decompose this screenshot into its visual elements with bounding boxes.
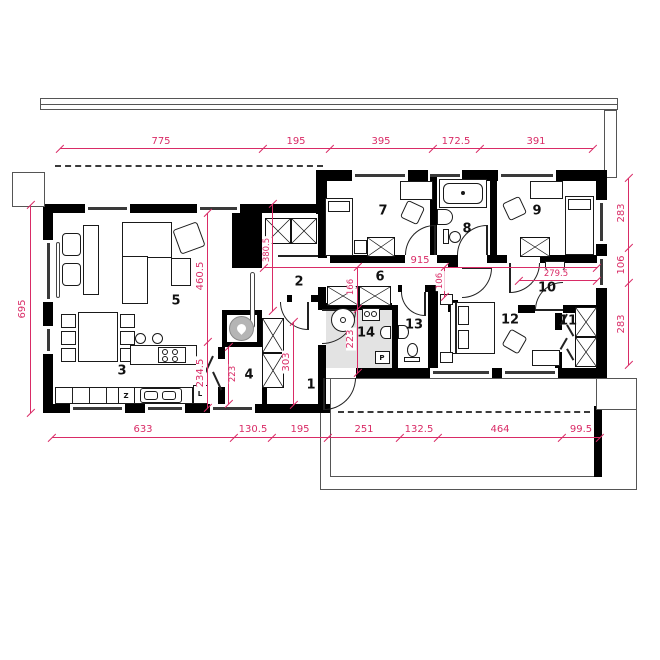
door-arc-room13 [401,292,425,316]
tv-wall-cabinet [232,213,262,268]
wall [218,347,225,359]
dim-line-380_5 [272,204,273,311]
dim-166: 166 [347,277,356,297]
wall [408,170,428,181]
wardrobe [262,318,284,353]
room-label-7: 7 [378,204,387,219]
wall [596,181,607,200]
desk [400,181,433,200]
dim-bottom-251: 251 [352,425,375,435]
room-label-5: 5 [171,294,180,309]
wall [240,204,326,213]
wall [43,354,53,413]
window-sash [213,407,252,410]
burner [162,349,168,355]
chair [62,263,81,286]
wardrobe [575,307,597,337]
washbasin [437,209,453,225]
wall [492,368,502,378]
wall [428,285,438,368]
armchair [172,221,205,254]
nightstand [440,352,453,363]
dim-303: 303 [282,350,292,373]
toilet-bowl [449,231,461,243]
room-label-8: 8 [462,222,471,237]
dim-line-279_5 [519,280,597,281]
pillow [568,199,591,210]
dim-bottom-633: 633 [131,425,154,435]
room-label-11: 11 [559,314,577,329]
wall [326,170,352,181]
dim-line-460_5 [207,213,208,408]
wall [518,305,535,313]
chair [120,331,135,345]
dim-bottom-195: 195 [288,425,311,435]
window-sash [505,371,555,374]
window-sash [47,329,50,351]
washer-drum [364,311,370,317]
dim-bottom-130_5: 130.5 [237,425,270,435]
dim-223-bath: 223 [346,327,356,350]
window-sash [200,207,237,210]
wall [311,295,318,302]
fridge-label: L [198,390,202,398]
dim-915: 915 [408,256,431,266]
desk [83,225,99,295]
chair [62,233,81,256]
headboard [455,303,457,353]
dresser [367,237,395,257]
wall [287,295,292,302]
room-label-9: 9 [532,204,541,219]
wardrobe [575,337,597,367]
room-label-10: 10 [538,281,556,296]
folding-door-room11 [566,349,574,361]
wall [125,404,145,413]
dim-279_5: 279.5 [542,270,570,279]
chair [502,329,528,355]
chair [502,196,527,221]
toilet-bowl [407,343,418,357]
washer-drum [371,311,377,317]
window-sash [355,174,405,177]
nightstand [354,240,367,254]
window-sash [88,207,127,210]
dim-line-166-223 [357,267,358,373]
door-arc-room7 [405,225,435,255]
wall [43,204,53,240]
wall [556,170,607,181]
pillow [328,201,350,212]
wall [596,288,607,368]
burner [172,356,178,362]
coffee-table [171,258,191,286]
chair [120,314,135,328]
dim-top-195: 195 [284,137,307,147]
dining-table [78,312,118,362]
wardrobe [291,218,317,244]
counter-divider [106,388,107,403]
dresser [520,237,550,257]
chimney-left [12,172,45,207]
floor-plan: Z L P 1 2 3 4 [0,0,660,660]
wall [558,368,607,378]
dim-line-right [628,178,629,365]
pillow [458,330,469,349]
radiator [56,242,60,298]
dim-380_5: 380.5 [263,236,272,264]
room-label-12: 12 [501,313,519,328]
dim-right-106: 106 [617,253,627,276]
desk [530,181,563,199]
wall [356,368,430,378]
room-label-14: 14 [357,326,375,341]
dim-right-283a: 283 [617,201,627,224]
dim-right-283b: 283 [617,312,627,335]
wall [487,255,507,263]
dim-top-395: 395 [369,137,392,147]
room-label-4: 4 [244,368,253,383]
room-label-3: 3 [117,364,126,379]
roof-band-right [604,110,617,178]
room-label-13: 13 [405,318,423,333]
wardrobe [359,286,391,306]
burner [162,356,168,362]
window-sash [501,174,553,177]
window-sash [148,407,182,410]
chair [400,200,425,225]
bar-stool [135,333,146,344]
drain [461,191,465,195]
pillow [458,306,469,325]
wall [398,285,402,292]
washer-label: P [379,354,384,362]
roof-band-top-inner [40,104,618,105]
dim-234_5: 234.5 [196,357,206,390]
window-sash [600,203,603,241]
room-label-1: 1 [306,378,315,393]
sofa [122,222,172,258]
dim-bottom-99_5: 99.5 [568,425,594,435]
dim-top-391: 391 [524,137,547,147]
dim-bottom-132_5: 132.5 [403,425,436,435]
toilet-tank [404,357,420,362]
hall-shelf [278,255,318,257]
wall [130,204,197,213]
sink-bowl [162,391,176,400]
room-label-2: 2 [294,275,303,290]
dim-223-boiler: 223 [229,364,238,384]
counter-divider [72,388,73,403]
chair [61,314,76,328]
door-arc-room10 [462,268,492,298]
sofa-chaise [122,256,148,304]
room-label-6: 6 [375,270,384,285]
bar-stool [152,333,163,344]
window-sash [73,407,122,410]
wall [490,170,497,255]
wall [318,345,326,378]
dim-line-top [60,148,593,149]
dim-top-172_5: 172.5 [440,137,473,147]
dim-line-303 [293,322,294,405]
dim-left-695: 695 [18,297,28,320]
wall [43,302,53,326]
dim-106-int: 106 [436,271,445,291]
wall [596,244,607,256]
shower-drain [340,317,346,323]
chair [61,331,76,345]
dim-top-775: 775 [149,137,172,147]
dim-bottom-464: 464 [488,425,511,435]
burner [172,349,178,355]
desk [532,350,560,366]
wall [425,285,428,292]
wall [318,287,326,310]
chimney-right [596,378,637,410]
chair [61,348,76,362]
dim-460_5: 460.5 [196,260,206,293]
roof-overhang-dashed-top [55,165,323,167]
dishwasher-label: Z [123,392,128,400]
washbasin [380,326,391,339]
counter-divider [89,388,90,403]
sink-bowl [144,391,158,400]
window-sash [47,243,50,299]
dim-line-left [30,205,31,413]
roof-overhang-dashed-terrace [338,411,590,413]
window-sash [433,371,489,374]
